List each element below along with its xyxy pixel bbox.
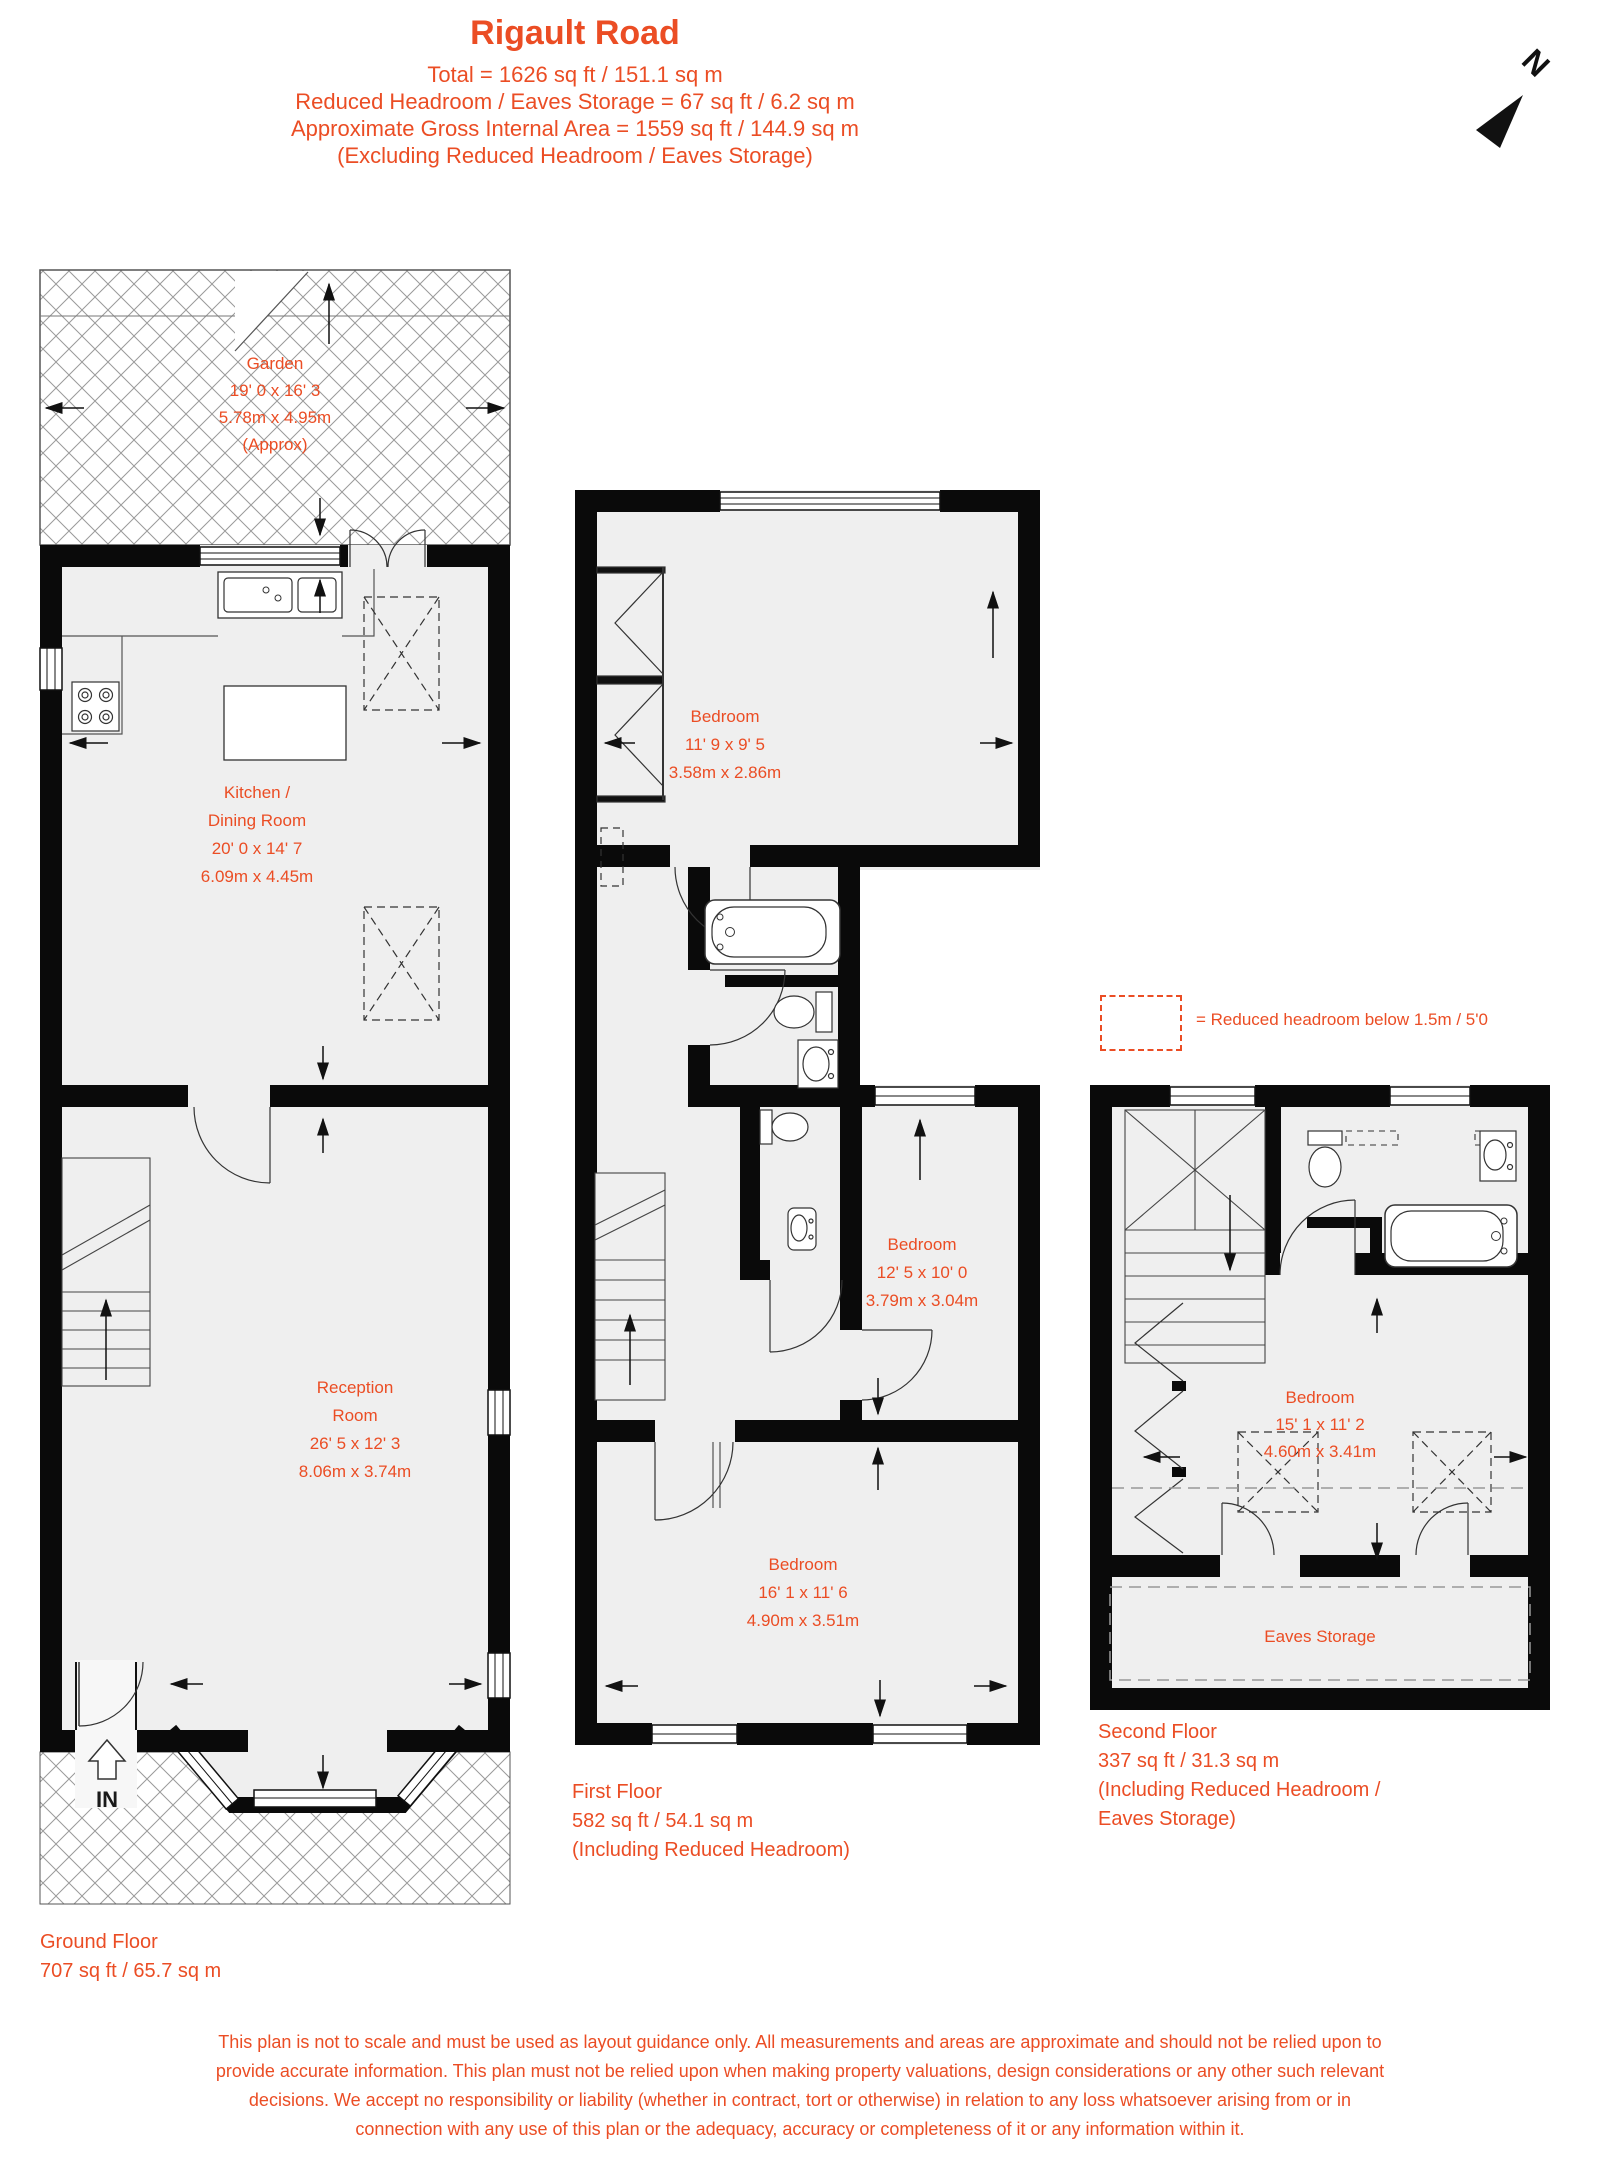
first-stairs	[595, 1173, 665, 1400]
entrance-label: IN	[77, 1787, 137, 1813]
second-stairs	[1125, 1110, 1265, 1363]
summary-total: Total = 1626 sq ft / 151.1 sq m	[75, 61, 1075, 88]
bathroom-sink	[798, 1040, 838, 1088]
bathtub	[705, 900, 840, 964]
eaves-storage-label: Eaves Storage	[1200, 1623, 1440, 1650]
summary-reduced-headroom: Reduced Headroom / Eaves Storage = 67 sq…	[75, 88, 1075, 115]
kitchen-sink	[218, 572, 342, 618]
second-floor-label: Second Floor 337 sq ft / 31.3 sq m (Incl…	[1098, 1718, 1380, 1834]
garden-label: Garden 19' 0 x 16' 3 5.78m x 4.95m (Appr…	[155, 350, 395, 458]
page-title: Rigault Road	[75, 14, 1075, 53]
area-summary: Total = 1626 sq ft / 151.1 sq m Reduced …	[75, 61, 1075, 169]
ground-floor-label: Ground Floor 707 sq ft / 65.7 sq m	[40, 1928, 221, 1986]
first-bedroom-top-label: Bedroom 11' 9 x 9' 5 3.58m x 2.86m	[605, 703, 845, 787]
disclaimer: This plan is not to scale and must be us…	[0, 2028, 1600, 2144]
entrance-porch	[75, 1660, 143, 1808]
second-sink	[1480, 1131, 1516, 1181]
reduced-headroom-legend-text: = Reduced headroom below 1.5m / 5'0	[1196, 1010, 1488, 1030]
ground-floor-plan	[30, 258, 522, 1910]
first-bedroom-mid-label: Bedroom 12' 5 x 10' 0 3.79m x 3.04m	[802, 1231, 1042, 1315]
second-bathtub	[1385, 1205, 1517, 1267]
ground-stairs	[62, 1158, 150, 1386]
summary-excluding-note: (Excluding Reduced Headroom / Eaves Stor…	[75, 142, 1075, 169]
first-bedroom-bottom-label: Bedroom 16' 1 x 11' 6 4.90m x 3.51m	[683, 1551, 923, 1635]
first-floor-label: First Floor 582 sq ft / 54.1 sq m (Inclu…	[572, 1778, 850, 1865]
kitchen-hob	[72, 682, 119, 731]
second-toilet	[1308, 1131, 1342, 1187]
floorplan-page: Rigault Road Total = 1626 sq ft / 151.1 …	[0, 0, 1600, 2169]
summary-gross-internal-area: Approximate Gross Internal Area = 1559 s…	[75, 115, 1075, 142]
reception-label: Reception Room 26' 5 x 12' 3 8.06m x 3.7…	[235, 1374, 475, 1486]
kitchen-label: Kitchen / Dining Room 20' 0 x 14' 7 6.09…	[137, 779, 377, 891]
wc-toilet	[760, 1110, 808, 1144]
reduced-headroom-legend-swatch	[1100, 995, 1182, 1051]
kitchen-island	[224, 686, 346, 760]
second-bedroom-label: Bedroom 15' 1 x 11' 2 4.60m x 3.41m	[1200, 1384, 1440, 1465]
